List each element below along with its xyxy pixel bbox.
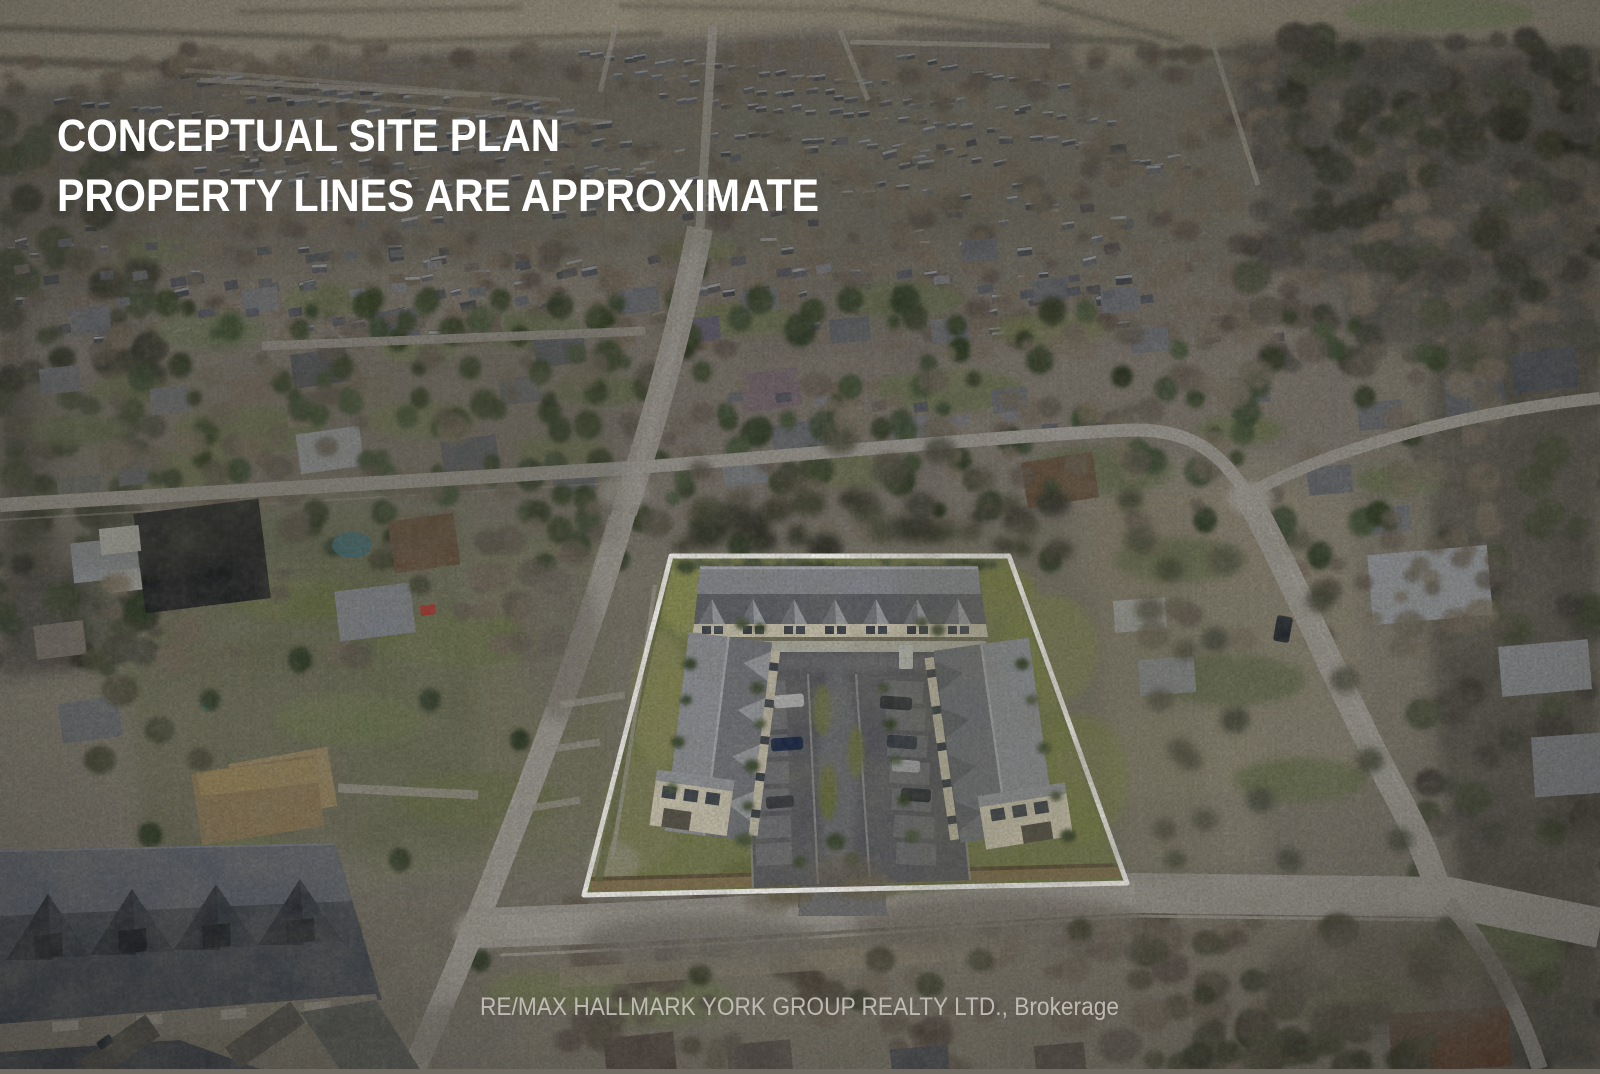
svg-text:RE/MAX HALLMARK YORK GROUP REA: RE/MAX HALLMARK YORK GROUP REALTY LTD., … [480, 993, 1119, 1021]
svg-text:PROPERTY LINES ARE APPROXIMATE: PROPERTY LINES ARE APPROXIMATE [57, 170, 819, 221]
svg-text:CONCEPTUAL SITE PLAN: CONCEPTUAL SITE PLAN [57, 110, 560, 161]
